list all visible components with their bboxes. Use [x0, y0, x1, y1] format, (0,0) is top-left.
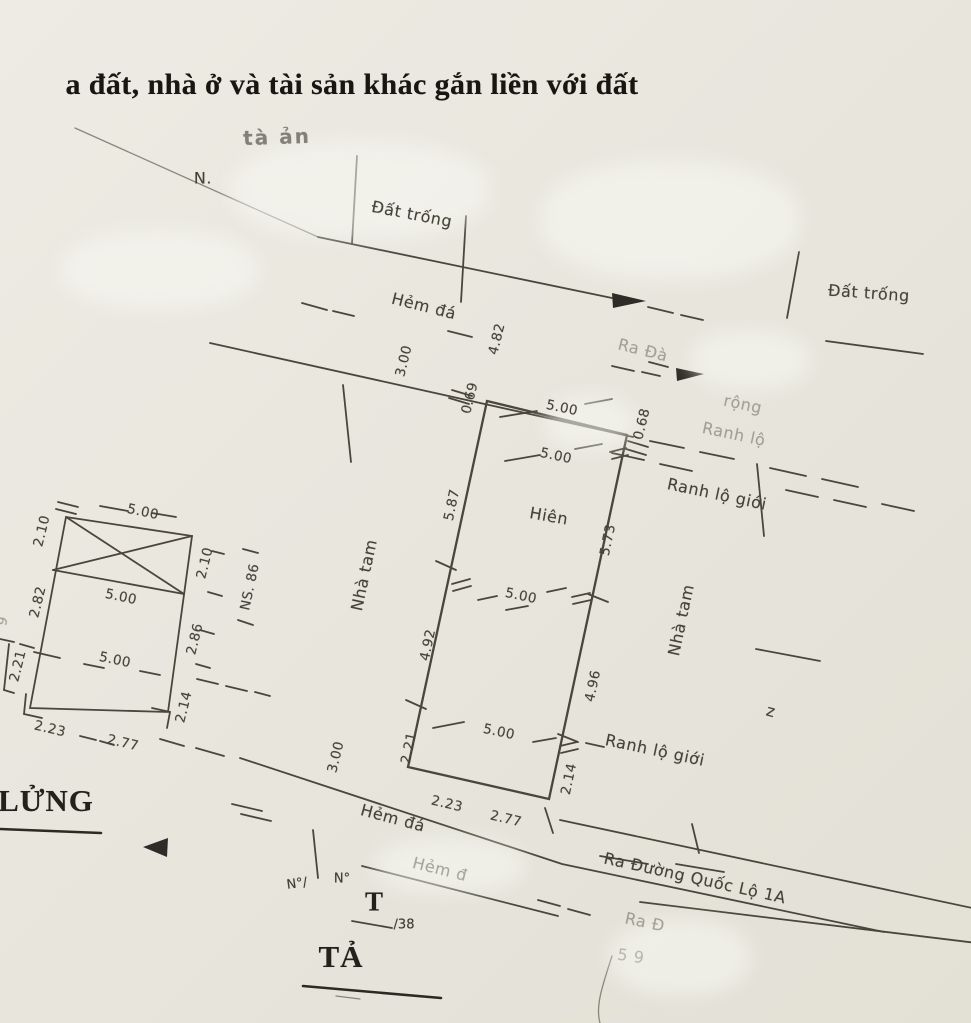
left-edge-partial: 9: [0, 615, 12, 628]
nha-tam-left: Nhà tam: [347, 537, 381, 612]
t-mark: T: [365, 887, 383, 918]
dim-hem-width-bot: 3.00: [324, 740, 347, 775]
doc-title-fragment: a đất, nhà ở và tài sản khác gắn liền vớ…: [66, 68, 639, 102]
dim-front-5-00-b: 5.00: [539, 445, 574, 467]
dim-2-21: 2.21: [398, 731, 420, 766]
scanned-survey-page: a đất, nhà ở và tài sản khác gắn liền vớ…: [0, 0, 971, 1023]
ra-da-faded: Ra Đà: [616, 335, 670, 366]
sub-dim-2-14: 2.14: [172, 690, 195, 725]
sub-dim-2-82: 2.82: [26, 585, 49, 620]
ra-d-faded: Ra Đ: [623, 909, 667, 936]
dat-trong-top: Đất trống: [370, 197, 454, 231]
ranh-lo-gioi-upper: Ranh lộ giới: [665, 474, 768, 514]
sub-dim-2-21: 2.21: [6, 649, 29, 684]
ta-mark: TẢ: [318, 939, 363, 975]
dim-4-82: 4.82: [485, 322, 508, 357]
north-mark: N.: [194, 169, 212, 188]
sub-dim-5-00-top: 5.00: [126, 501, 161, 523]
sub-dim-2-10-left: 2.10: [30, 514, 53, 549]
hem-da-bottom: Hẻm đá: [359, 800, 428, 835]
dim-0-68: 0.68: [630, 407, 653, 442]
no-mark-2: N°: [334, 872, 350, 887]
ranh-lo-gioi-lower: Ranh lộ giới: [603, 730, 706, 770]
dat-trong-right: Đất trống: [827, 281, 910, 306]
t-sub: /38: [394, 918, 415, 933]
sub-dim-5-00-mid: 5.00: [104, 586, 139, 608]
dim-2-14: 2.14: [558, 762, 580, 797]
no-mark-1: N°/: [286, 875, 308, 893]
dim-5-87: 5.87: [441, 488, 463, 523]
dim-4-92: 4.92: [417, 628, 439, 663]
hem-da-top: Hẻm đá: [390, 289, 459, 323]
hem-da-bottom-2: Hẻm đ: [411, 853, 470, 885]
ra-duong-quoc-lo: Ra Đường Quốc Lộ 1A: [602, 849, 788, 908]
labels-layer: a đất, nhà ở và tài sản khác gắn liền vớ…: [0, 0, 971, 1023]
dim-2-23: 2.23: [430, 793, 465, 816]
dim-front-5-00-a: 5.00: [545, 397, 580, 419]
dim-2-77: 2.77: [489, 808, 524, 831]
lung-mark: LỬNG: [0, 783, 94, 819]
dim-0-69: 0.69: [458, 381, 481, 416]
dim-bottom-5-00: 5.00: [482, 721, 517, 743]
hien-label: Hiên: [528, 503, 570, 528]
nha-tam-right: Nhà tam: [664, 582, 698, 657]
sub-dim-5-00-bot: 5.00: [98, 649, 133, 671]
dim-hem-width-top: 3.00: [392, 344, 415, 379]
dim-mid-5-00: 5.00: [504, 585, 539, 607]
faded-note: tà ản: [243, 124, 312, 150]
ranh-lo-faded: Ranh lộ: [701, 418, 768, 450]
z-mark: z: [764, 701, 778, 722]
dim-5-73: 5.73: [597, 523, 619, 558]
rong-faded: rộng: [722, 391, 764, 418]
sub-label-ns-86: NS. 86: [237, 562, 263, 612]
sub-dim-2-23: 2.23: [33, 718, 68, 741]
sub-dim-2-86: 2.86: [183, 622, 206, 657]
faint-59: 5 9: [616, 945, 646, 968]
sub-dim-2-10-right: 2.10: [193, 546, 216, 581]
dim-4-96: 4.96: [582, 669, 604, 704]
sub-dim-2-77: 2.77: [106, 732, 141, 755]
